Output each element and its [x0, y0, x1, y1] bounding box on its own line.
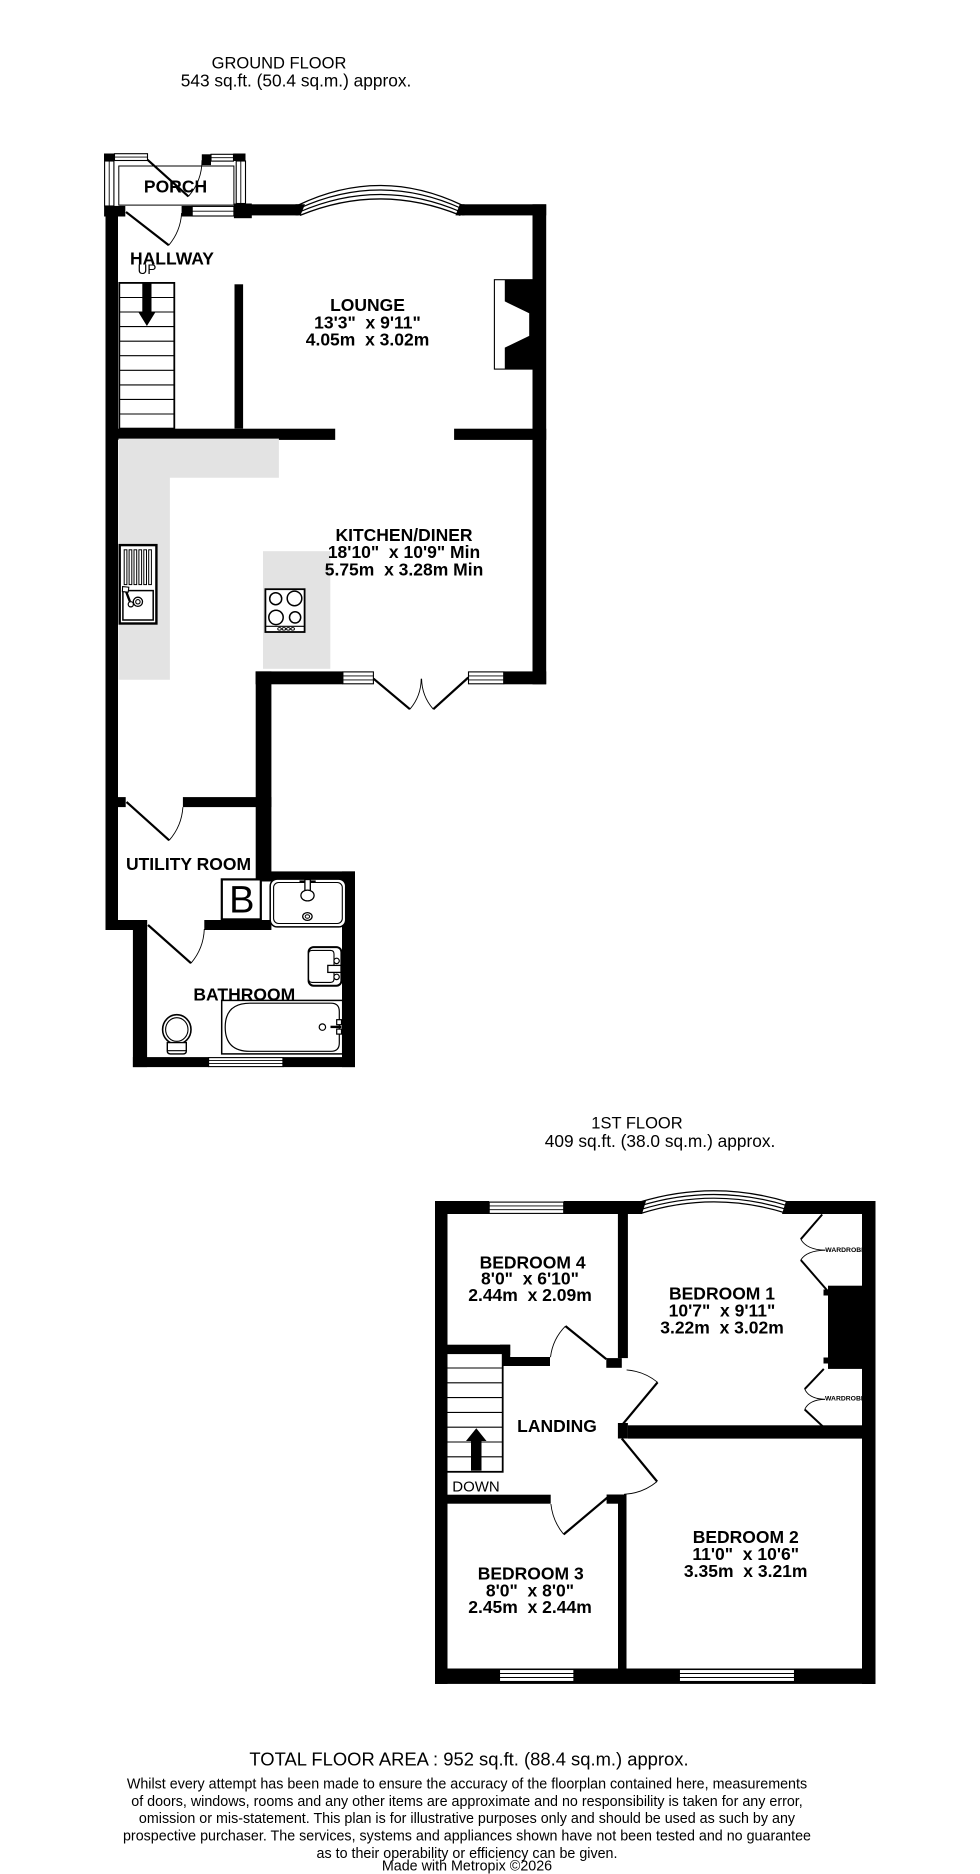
- svg-text:LANDING: LANDING: [517, 1416, 597, 1436]
- svg-text:543 sq.ft. (50.4 sq.m.) approx: 543 sq.ft. (50.4 sq.m.) approx.: [181, 71, 412, 91]
- svg-text:UTILITY ROOM: UTILITY ROOM: [126, 854, 251, 874]
- svg-text:DOWN: DOWN: [452, 1479, 500, 1496]
- svg-text:4.05m x 3.02m: 4.05m x 3.02m: [306, 330, 430, 350]
- svg-text:Whilst every attempt has been: Whilst every attempt has been made to en…: [127, 1777, 807, 1793]
- svg-text:omission or mis-statement. Thi: omission or mis-statement. This plan is …: [139, 1811, 796, 1827]
- svg-text:WARDROBE: WARDROBE: [825, 1395, 866, 1402]
- svg-text:of doors, windows, rooms and a: of doors, windows, rooms and any other i…: [131, 1794, 803, 1810]
- svg-text:2.44m x 2.09m: 2.44m x 2.09m: [468, 1285, 592, 1305]
- svg-text:prospective purchaser. The ser: prospective purchaser. The services, sys…: [123, 1829, 811, 1845]
- svg-text:B: B: [229, 880, 254, 922]
- svg-text:BATHROOM: BATHROOM: [193, 985, 295, 1005]
- svg-text:3.22m x 3.02m: 3.22m x 3.02m: [660, 1318, 784, 1338]
- svg-text:Made with Metropix ©2026: Made with Metropix ©2026: [382, 1859, 552, 1874]
- svg-text:WARDROBE: WARDROBE: [825, 1247, 866, 1254]
- svg-text:TOTAL FLOOR AREA : 952 sq.ft.: TOTAL FLOOR AREA : 952 sq.ft. (88.4 sq.m…: [249, 1749, 688, 1770]
- svg-text:409 sq.ft. (38.0 sq.m.) approx: 409 sq.ft. (38.0 sq.m.) approx.: [545, 1131, 776, 1151]
- svg-text:2.45m x 2.44m: 2.45m x 2.44m: [468, 1597, 592, 1617]
- svg-text:3.35m x 3.21m: 3.35m x 3.21m: [684, 1561, 808, 1581]
- svg-text:UP: UP: [138, 262, 157, 277]
- svg-text:PORCH: PORCH: [144, 177, 207, 197]
- svg-text:5.75m x 3.28m Min: 5.75m x 3.28m Min: [325, 559, 484, 579]
